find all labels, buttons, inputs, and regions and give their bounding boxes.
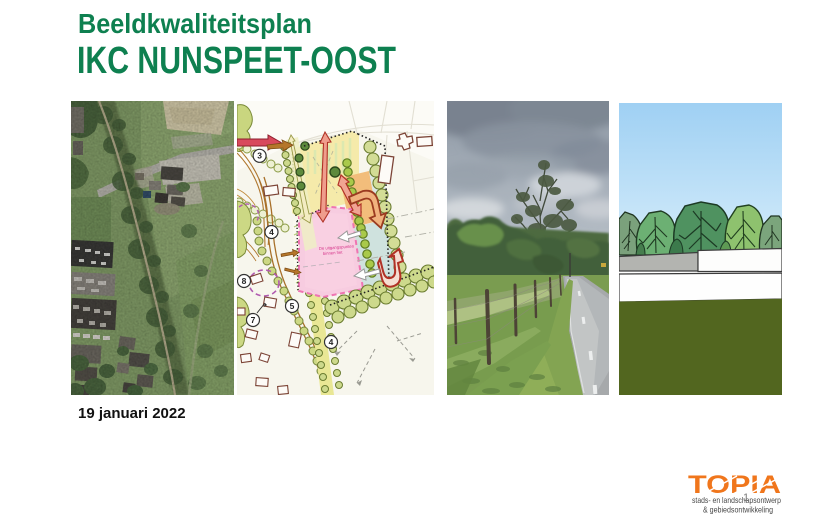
svg-text:& gebiedsontwikkeling: & gebiedsontwikkeling xyxy=(703,505,773,515)
svg-text:5: 5 xyxy=(290,301,295,311)
svg-text:stads- en landschapsontwerp: stads- en landschapsontwerp xyxy=(692,495,781,505)
svg-text:4: 4 xyxy=(329,337,334,347)
svg-text:3: 3 xyxy=(257,151,262,161)
svg-text:7: 7 xyxy=(251,315,256,325)
svg-text:8: 8 xyxy=(242,276,247,286)
svg-text:1: 1 xyxy=(743,492,749,504)
svg-text:4: 4 xyxy=(269,227,274,237)
